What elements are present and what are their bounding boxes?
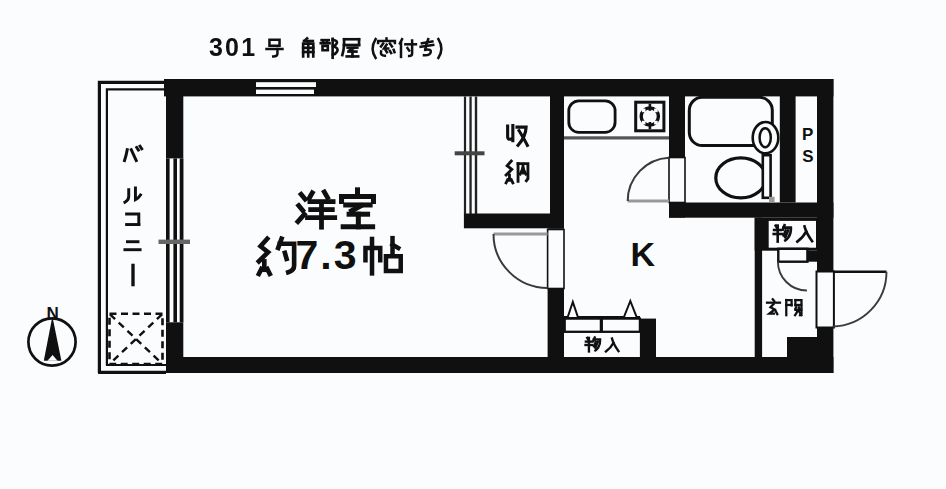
svg-text:7.3: 7.3 (296, 232, 359, 278)
svg-text:301: 301 (209, 33, 257, 61)
svg-text:N: N (47, 304, 59, 323)
svg-text:K: K (631, 235, 656, 273)
svg-text:P: P (802, 125, 813, 144)
svg-text:S: S (802, 147, 813, 166)
